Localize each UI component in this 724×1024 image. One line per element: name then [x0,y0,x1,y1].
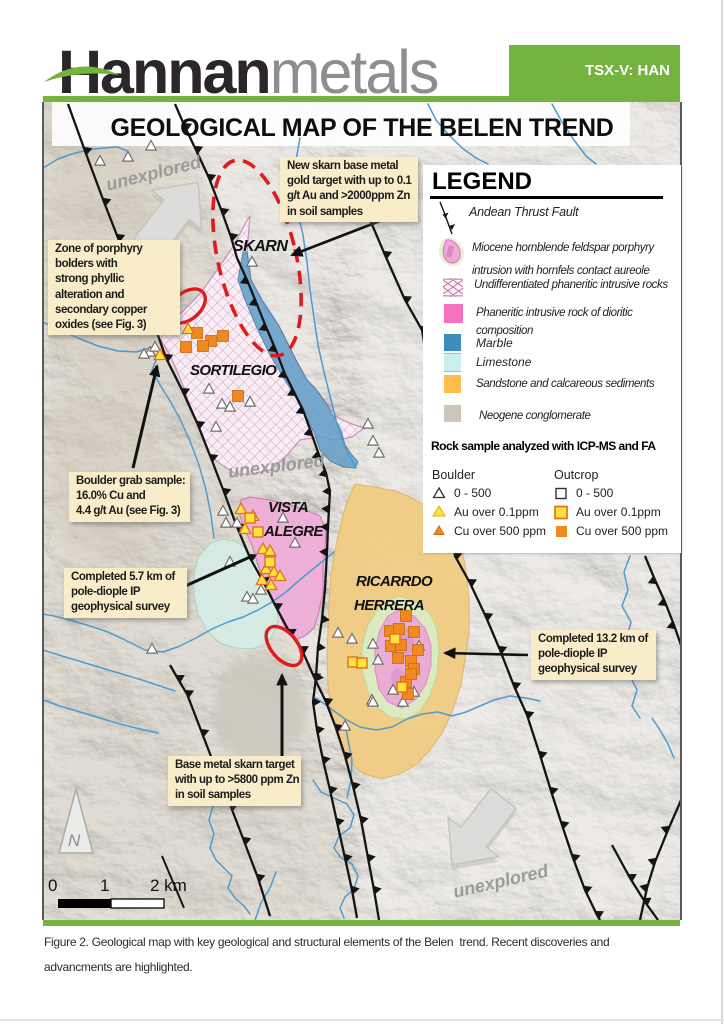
svg-text:SKARN: SKARN [233,238,288,255]
svg-text:1: 1 [100,876,109,895]
svg-text:2 km: 2 km [150,876,187,895]
svg-text:ALEGRE: ALEGRE [263,523,325,540]
svg-text:VISTA: VISTA [268,499,308,516]
svg-text:SORTILEGIO: SORTILEGIO [190,362,277,379]
svg-text:0: 0 [48,876,57,895]
svg-text:GEOLOGICAL MAP OF THE BELEN T: GEOLOGICAL MAP OF THE BELEN TREND [110,114,613,142]
svg-text:HERRERA: HERRERA [354,597,424,614]
svg-text:N: N [68,831,81,850]
svg-text:RICARRDO: RICARRDO [356,573,433,590]
